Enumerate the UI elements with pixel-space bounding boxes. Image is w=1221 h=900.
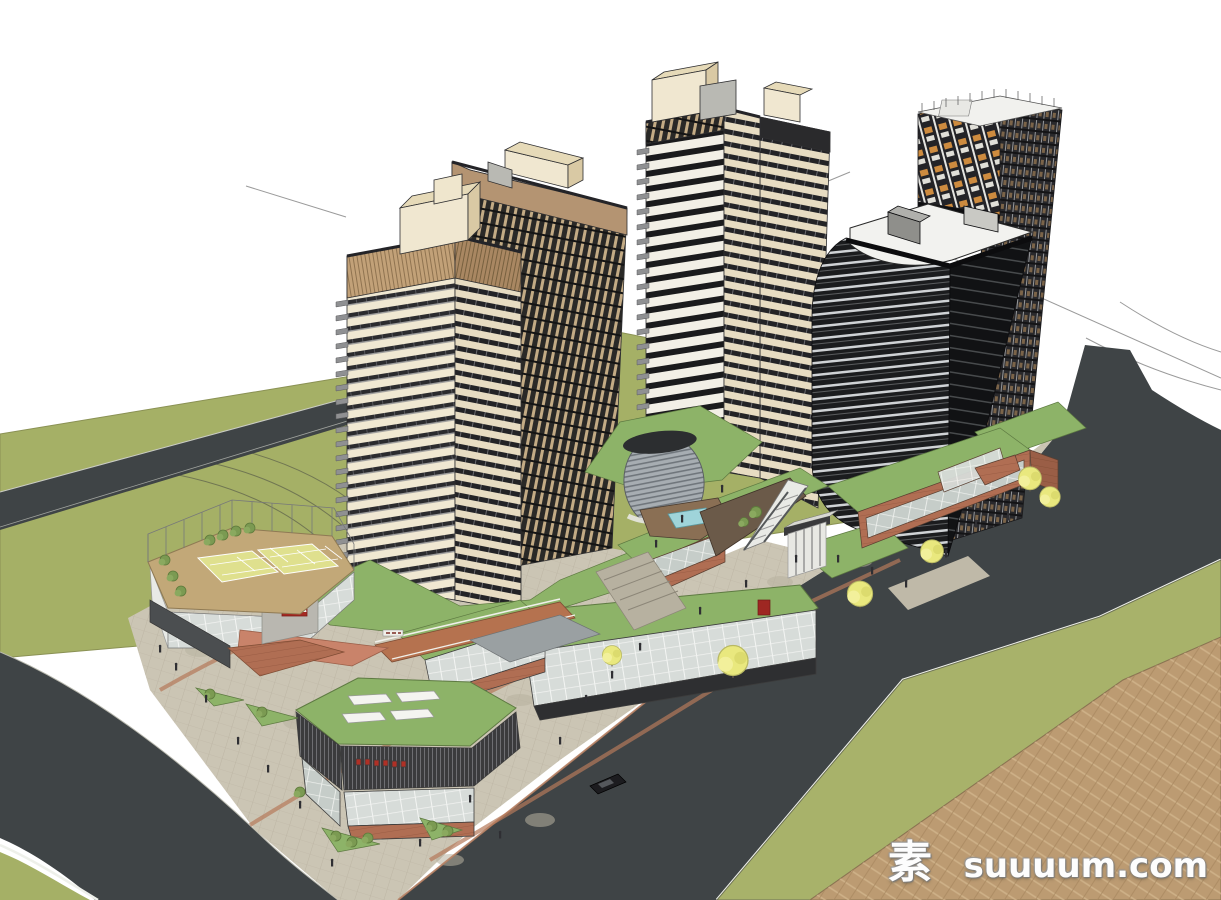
watermark-cn: 素模网 (888, 826, 962, 900)
watermark: 素模网suuuum.com (888, 826, 1208, 900)
render-canvas (0, 0, 1221, 900)
architectural-render: 素模网suuuum.com (0, 0, 1221, 900)
watermark-en: suuuum.com (964, 846, 1208, 886)
retail-hall-sign (758, 600, 770, 615)
